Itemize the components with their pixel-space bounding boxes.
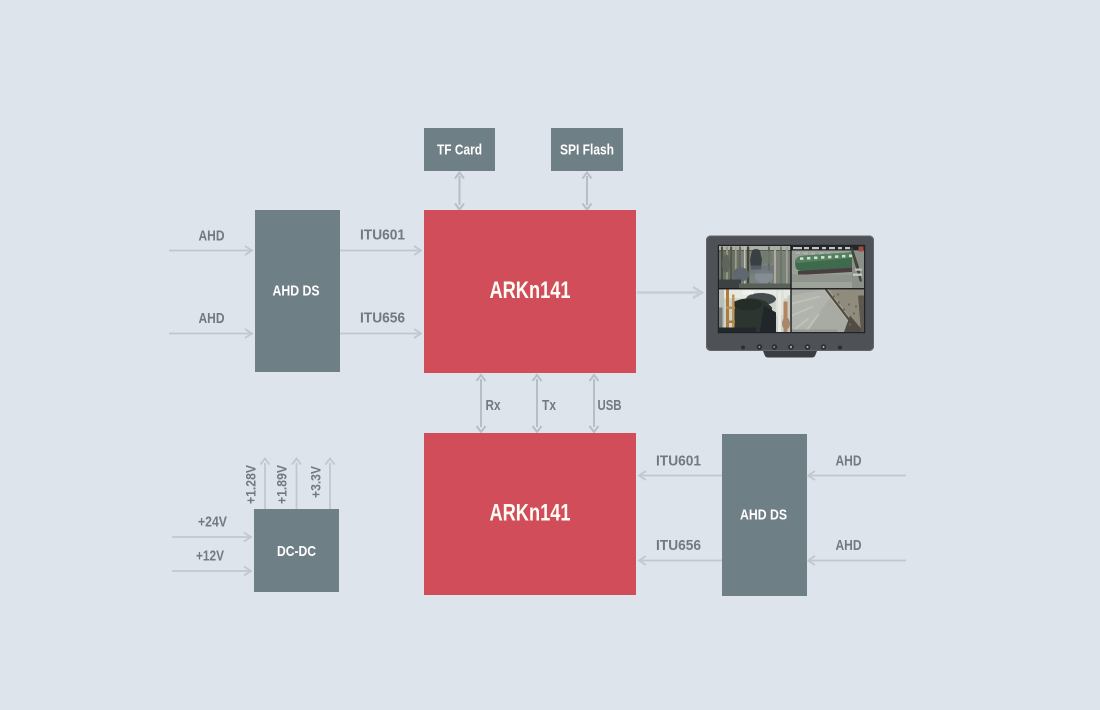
svg-text:+1.89V: +1.89V — [275, 465, 290, 504]
svg-text:AHD: AHD — [199, 229, 225, 245]
svg-text:ITU601: ITU601 — [656, 454, 701, 470]
svg-text:+3.3V: +3.3V — [309, 466, 324, 498]
svg-text:AHD: AHD — [836, 538, 862, 554]
svg-text:+12V: +12V — [196, 549, 224, 565]
svg-text:USB: USB — [598, 398, 622, 414]
svg-text:ARKn141: ARKn141 — [490, 277, 571, 304]
svg-text:AHD DS: AHD DS — [740, 507, 787, 524]
svg-text:Tx: Tx — [542, 398, 556, 414]
svg-text:DC-DC: DC-DC — [277, 543, 316, 560]
svg-text:+24V: +24V — [198, 515, 227, 531]
svg-text:ARKn141: ARKn141 — [490, 500, 571, 527]
svg-text:ITU656: ITU656 — [656, 538, 701, 554]
svg-text:ITU601: ITU601 — [360, 228, 405, 244]
svg-text:AHD DS: AHD DS — [273, 282, 320, 299]
svg-text:AHD: AHD — [199, 311, 225, 327]
svg-text:AHD: AHD — [836, 454, 862, 470]
svg-text:Rx: Rx — [486, 398, 501, 414]
svg-text:+1.28V: +1.28V — [244, 465, 259, 504]
svg-text:SPI Flash: SPI Flash — [560, 141, 614, 158]
svg-text:ITU656: ITU656 — [360, 311, 405, 327]
svg-text:TF Card: TF Card — [437, 141, 482, 158]
